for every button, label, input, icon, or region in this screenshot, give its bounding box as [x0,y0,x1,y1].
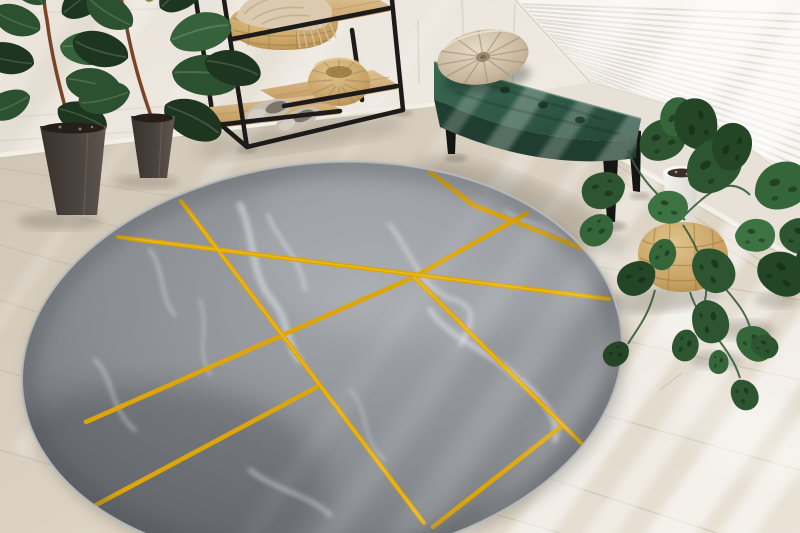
room-photo: White panelled wall with sunlight streak… [0,0,800,533]
scene-canvas: White panelled wall with sunlight streak… [0,0,800,533]
